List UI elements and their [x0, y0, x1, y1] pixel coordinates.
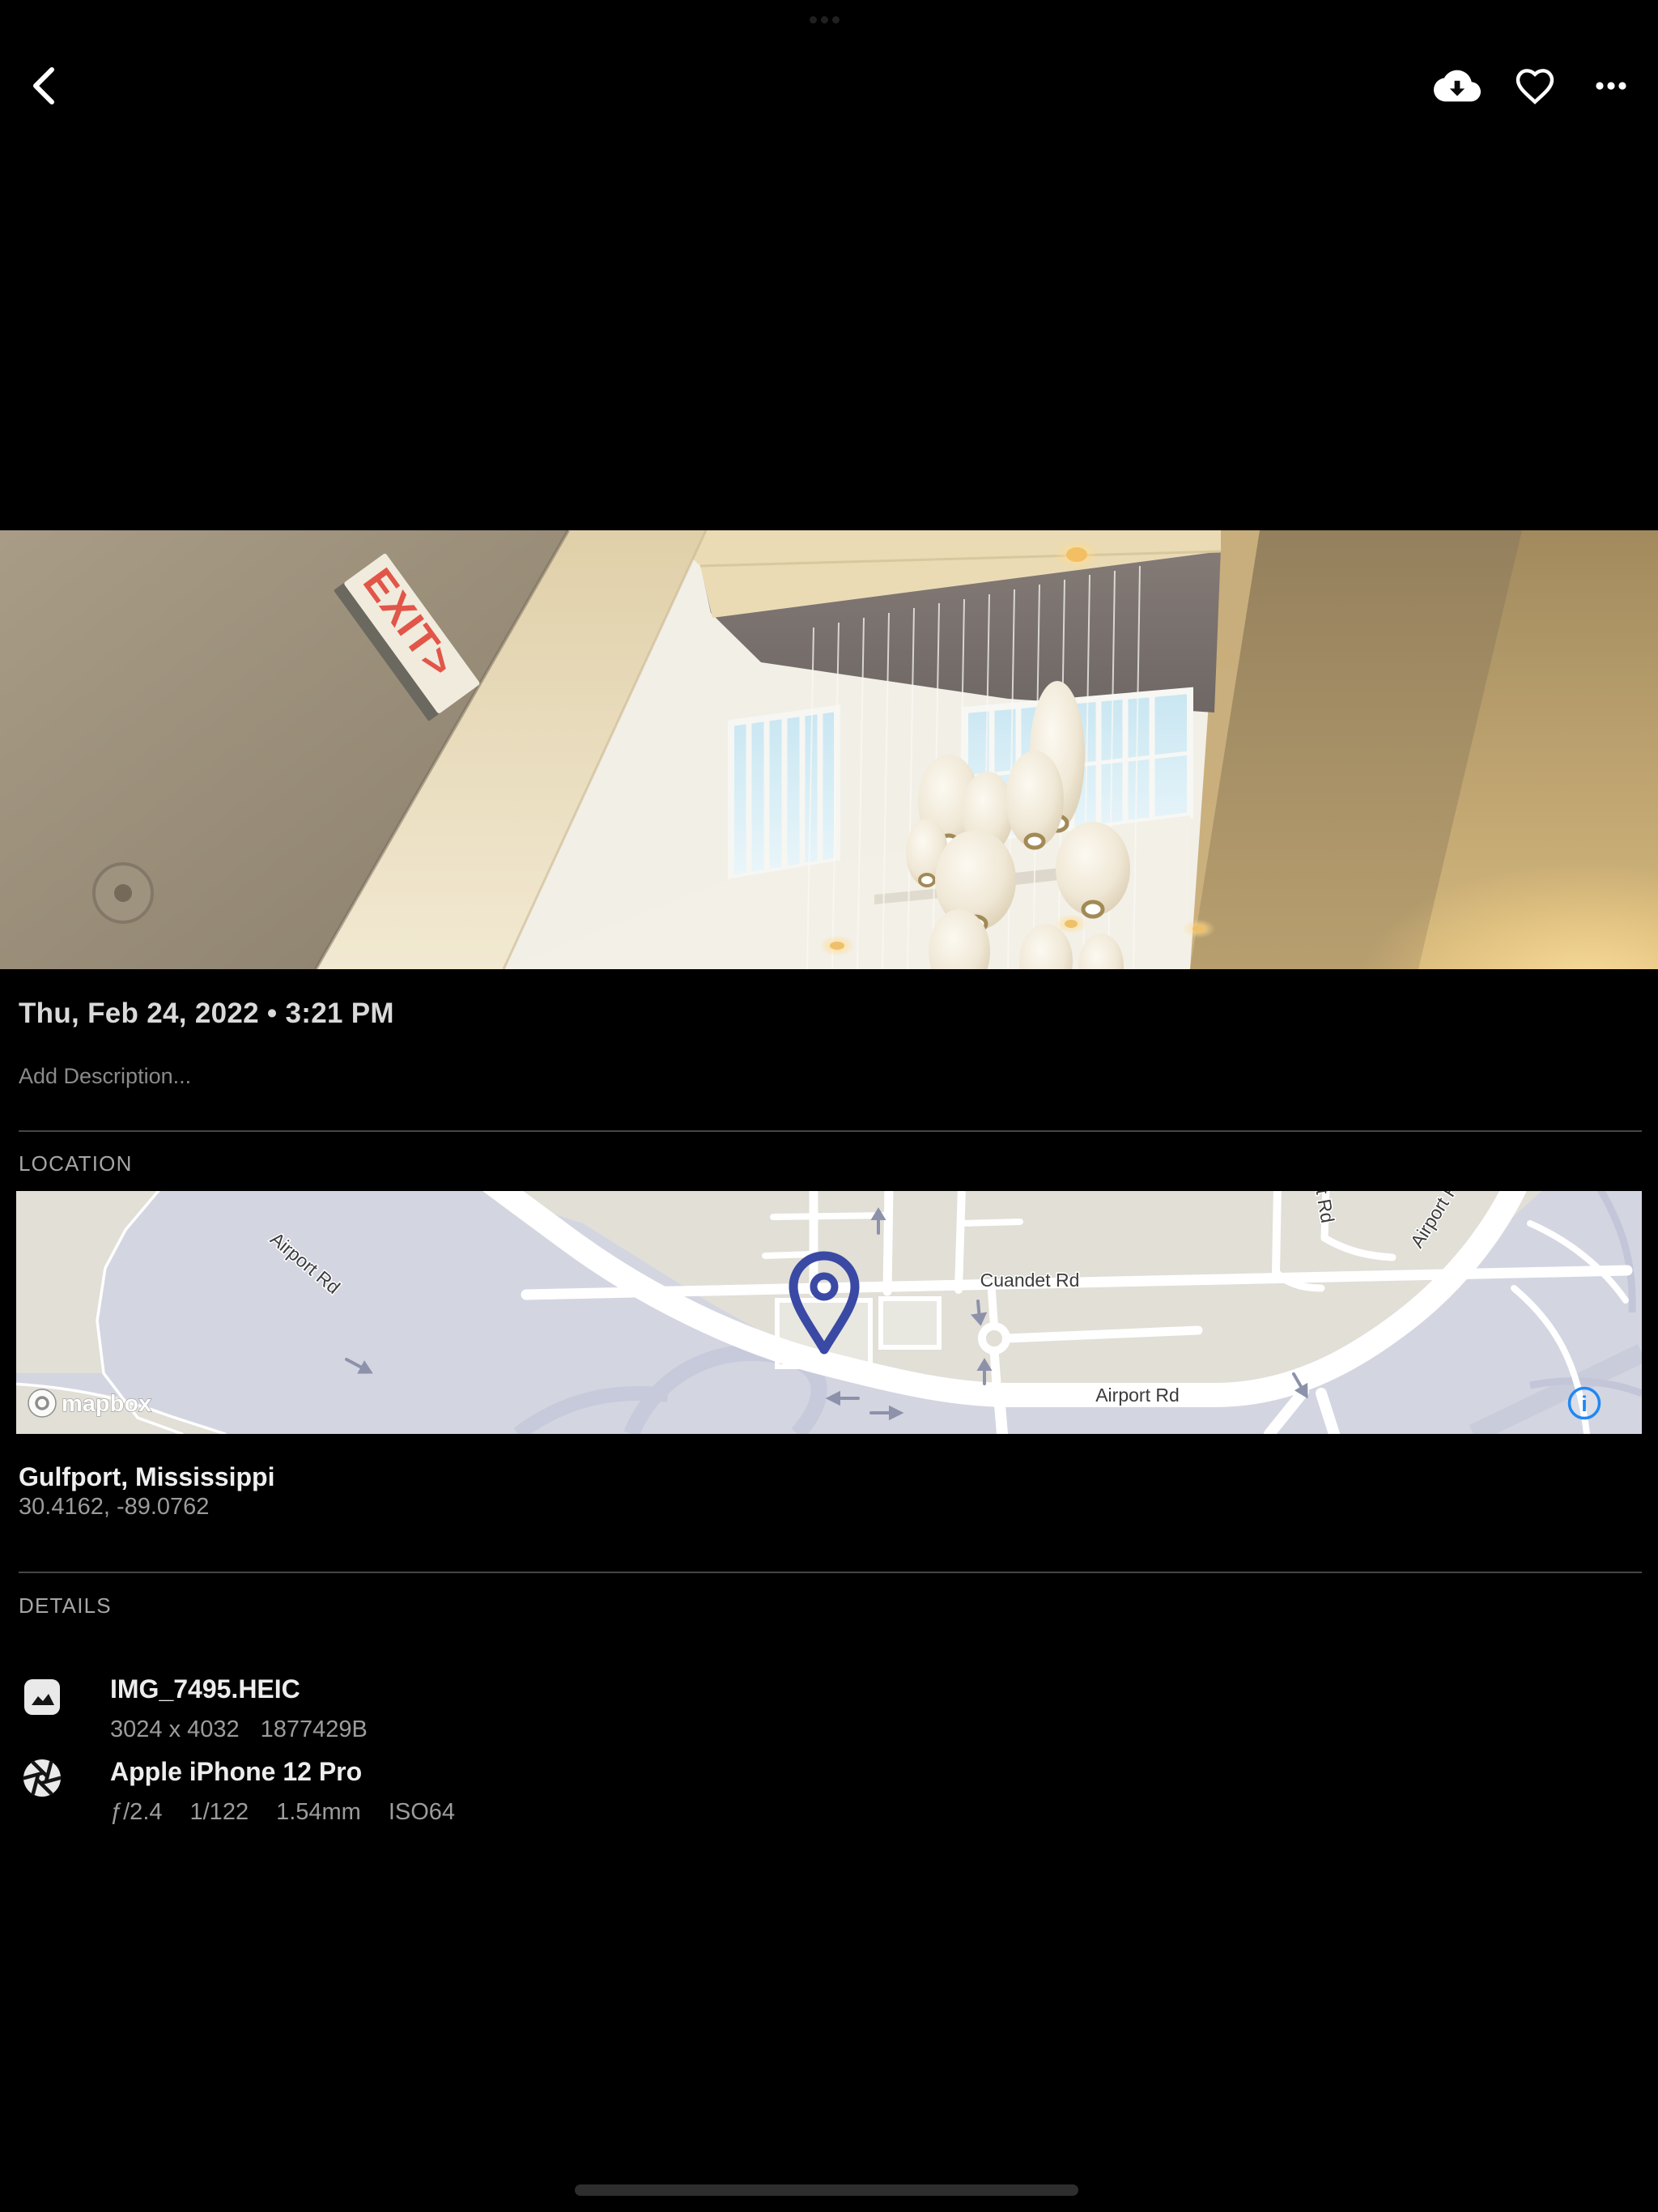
camera-focal-length: 1.54mm	[276, 1799, 361, 1825]
ellipsis-icon	[1585, 60, 1637, 112]
camera-exif: ƒ/2.41/1221.54mmISO64	[110, 1799, 483, 1826]
location-coordinates: 30.4162, -89.0762	[19, 1494, 209, 1521]
photo-datetime: Thu, Feb 24, 2022 • 3:21 PM	[19, 998, 394, 1030]
description-field[interactable]: Add Description...	[19, 1064, 191, 1089]
more-button[interactable]	[1585, 60, 1637, 112]
photo-atrium-ceiling: EXIT>	[0, 530, 1658, 969]
divider	[19, 1572, 1642, 1573]
mapbox-logo-text: mapbox	[62, 1391, 151, 1417]
photo-viewer[interactable]: EXIT>	[0, 530, 1658, 969]
map-canvas: Airport Rd Cuandet Rd Airport Rd Airport…	[16, 1191, 1642, 1434]
camera-shutter: 1/122	[190, 1799, 249, 1825]
map-info-button[interactable]: i	[1570, 1389, 1600, 1419]
file-dimensions: 3024 x 4032	[110, 1716, 240, 1742]
chevron-left-icon	[19, 60, 71, 112]
file-name: IMG_7495.HEIC	[110, 1674, 300, 1704]
camera-name: Apple iPhone 12 Pro	[110, 1757, 362, 1787]
map-label-airport-rd-horizontal: Airport Rd	[1095, 1385, 1180, 1406]
back-button[interactable]	[19, 60, 71, 112]
camera-row-icon	[23, 1759, 62, 1802]
camera-iso: ISO64	[389, 1799, 455, 1825]
map-label-cuandet-rd: Cuandet Rd	[980, 1270, 1080, 1291]
camera-aperture: ƒ/2.4	[110, 1799, 163, 1825]
details-section-label: DETAILS	[19, 1593, 112, 1619]
cloud-download-icon	[1434, 62, 1481, 109]
photo-detail-screen: EXIT> Thu, Feb 24, 2022 • 3:21 PM Add De…	[0, 0, 1658, 2212]
heart-icon	[1512, 63, 1558, 108]
mapbox-attribution[interactable]: mapbox	[28, 1389, 151, 1417]
divider	[19, 1130, 1642, 1132]
location-place: Gulfport, Mississippi	[19, 1462, 274, 1492]
multitask-indicator	[810, 16, 840, 23]
favorite-button[interactable]	[1509, 60, 1561, 112]
file-type-icon	[23, 1678, 61, 1720]
location-map[interactable]: Airport Rd Cuandet Rd Airport Rd Airport…	[16, 1191, 1642, 1434]
image-icon	[23, 1678, 61, 1716]
download-button[interactable]	[1431, 60, 1483, 112]
info-icon: i	[1581, 1392, 1588, 1416]
file-meta: 3024 x 40321877429B	[110, 1716, 389, 1743]
file-size: 1877429B	[261, 1716, 368, 1742]
home-indicator[interactable]	[575, 2184, 1078, 2196]
location-section-label: LOCATION	[19, 1151, 133, 1176]
aperture-icon	[23, 1759, 62, 1797]
